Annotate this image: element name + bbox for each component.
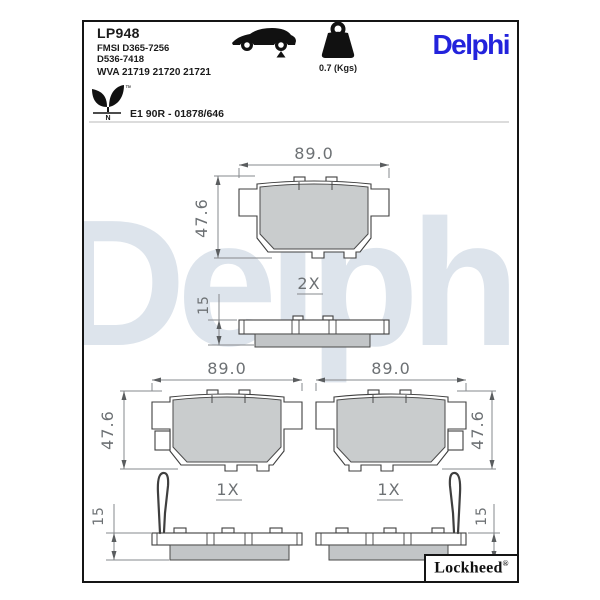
pad-front-view-bottom-left — [152, 390, 302, 471]
weight-label: 0.7 (Kgs) — [314, 63, 362, 73]
fmsi-reference-2: D536-7418 — [97, 54, 144, 65]
pad-front-view-bottom-right — [316, 390, 466, 471]
eco-leaf-icon: N ™ — [89, 83, 131, 121]
svg-text:47.6: 47.6 — [98, 410, 117, 450]
dim-thickness-bottom-left: 15 — [91, 504, 169, 560]
part-number: LP948 — [97, 25, 140, 41]
qty-label-bottom-left: 1X — [216, 480, 242, 500]
svg-text:89.0: 89.0 — [207, 359, 247, 378]
dim-width-bottom-left: 89.0 — [152, 359, 302, 391]
lockheed-logo: Lockheed® — [434, 559, 508, 577]
rear-axle-marker-icon — [277, 51, 286, 58]
brake-pad-technical-drawing: 89.0 47.6 2X 15 — [84, 22, 519, 583]
svg-text:15: 15 — [196, 295, 212, 315]
pad-side-view-top — [239, 316, 389, 347]
shim-clip-tab — [155, 431, 170, 450]
car-rear-axle-icon — [230, 26, 298, 58]
svg-text:89.0: 89.0 — [294, 144, 334, 163]
svg-text:15: 15 — [91, 506, 107, 526]
drawing-sheet-frame: Delphi LP948 FMSI D365-7256 D536-7418 WV… — [82, 20, 519, 583]
eco-trademark: ™ — [125, 85, 131, 92]
svg-text:1X: 1X — [377, 480, 400, 499]
qty-label-bottom-right: 1X — [377, 480, 403, 500]
header-divider — [89, 121, 509, 123]
svg-text:47.6: 47.6 — [468, 410, 487, 450]
svg-text:15: 15 — [474, 506, 490, 526]
wva-reference: WVA 21719 21720 21721 — [97, 67, 211, 78]
lockheed-title-block: Lockheed® — [424, 554, 517, 581]
datasheet-page: Delphi LP948 FMSI D365-7256 D536-7418 WV… — [0, 0, 600, 600]
svg-text:89.0: 89.0 — [371, 359, 411, 378]
dim-width-top: 89.0 — [239, 144, 389, 178]
pad-front-view-top — [239, 177, 389, 258]
shim-clip-tab — [448, 431, 463, 450]
qty-label-top: 2X — [297, 274, 323, 294]
fmsi-reference-1: FMSI D365-7256 — [97, 43, 169, 54]
delphi-logo: Delphi — [432, 29, 509, 61]
svg-text:47.6: 47.6 — [192, 198, 211, 238]
dim-width-bottom-right: 89.0 — [316, 359, 466, 391]
svg-text:2X: 2X — [297, 274, 320, 293]
weight-icon — [314, 22, 362, 62]
ece-approval-number: E1 90R - 01878/646 — [130, 108, 224, 120]
svg-text:1X: 1X — [216, 480, 239, 499]
registered-mark: ® — [503, 559, 509, 568]
